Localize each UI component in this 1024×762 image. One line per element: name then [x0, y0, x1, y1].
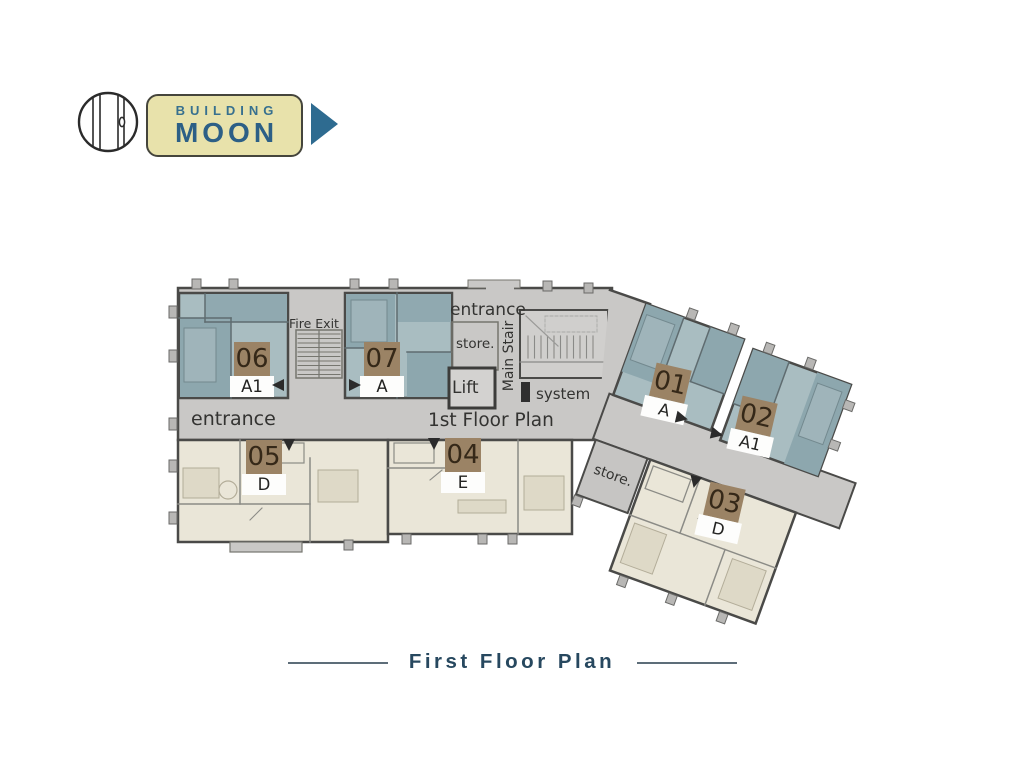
unit-label-05: 05 D	[242, 440, 286, 495]
lift-label: Lift	[452, 378, 479, 398]
page: BUILDING MOON	[0, 0, 1024, 762]
unit-type: D	[242, 474, 286, 495]
unit-label-07: 07 A	[360, 342, 404, 397]
unit-type: A1	[230, 376, 274, 397]
unit-label-06: 06 A1	[230, 342, 274, 397]
entrance-arrow-icon-04	[428, 438, 440, 450]
unit-number: 07	[364, 342, 400, 376]
unit-number: 05	[246, 440, 282, 474]
unit-type: E	[441, 472, 485, 493]
main-stair-label: Main Stair	[501, 314, 517, 398]
page-title: First Floor Plan	[362, 650, 662, 674]
fire-exit-label: Fire Exit	[289, 316, 339, 331]
entrance-arrow-icon-06	[272, 379, 284, 391]
unit-label-04: 04 E	[441, 438, 485, 493]
system-label: system	[536, 385, 590, 403]
first-floor-plan-inline-label: 1st Floor Plan	[428, 410, 554, 431]
store-top-label: store.	[456, 336, 494, 352]
entrance-left-label: entrance	[191, 408, 276, 430]
unit-type: A	[360, 376, 404, 397]
entrance-arrow-icon-07	[349, 379, 361, 391]
unit-number: 06	[234, 342, 270, 376]
unit-number: 04	[445, 438, 481, 472]
entrance-arrow-icon-05	[283, 439, 295, 451]
